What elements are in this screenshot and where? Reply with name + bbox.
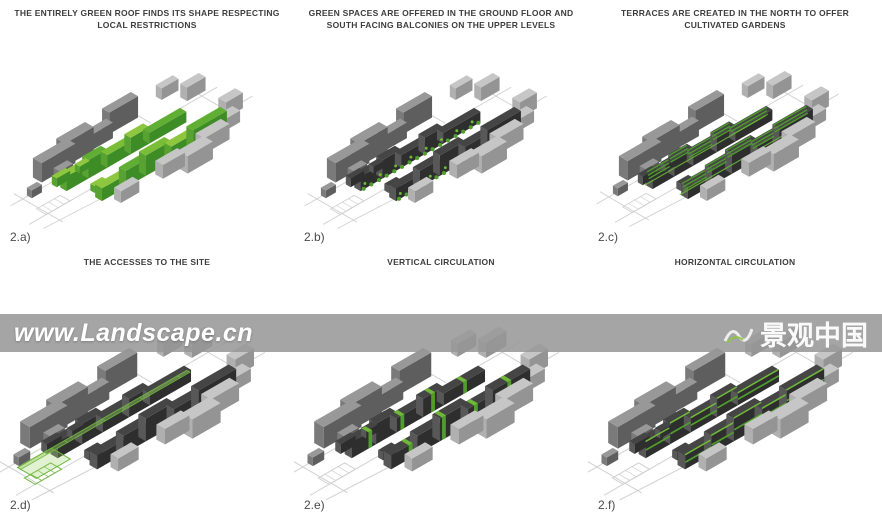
panel-caption-2a: THE ENTIRELY GREEN ROOF FINDS ITS SHAPE … bbox=[0, 0, 294, 44]
panel-2b: 2.b) bbox=[294, 44, 588, 250]
watermark-band: www.Landscape.cn 景观中国 bbox=[0, 314, 882, 352]
panel-label-2b: 2.b) bbox=[304, 230, 325, 244]
panel-2c: 2.c) bbox=[588, 44, 882, 250]
panel-label-2f: 2.f) bbox=[598, 498, 615, 512]
panel-caption-2c: TERRACES ARE CREATED IN THE NORTH TO OFF… bbox=[588, 0, 882, 44]
diagram-sheet: THE ENTIRELY GREEN ROOF FINDS ITS SHAPE … bbox=[0, 0, 882, 526]
landscape-swoosh-icon bbox=[723, 321, 753, 345]
site-axonometric-diagram-2d bbox=[0, 272, 294, 526]
panel-caption-2e: VERTICAL CIRCULATION bbox=[294, 250, 588, 272]
site-axonometric-diagram-2c bbox=[588, 44, 882, 250]
panel-2f: 2.f) bbox=[588, 272, 882, 526]
panel-caption-2d: THE ACCESSES TO THE SITE bbox=[0, 250, 294, 272]
panels-row-top: 2.a) 2.b) 2.c) bbox=[0, 44, 882, 250]
mid-captions-row: THE ACCESSES TO THE SITE VERTICAL CIRCUL… bbox=[0, 250, 882, 272]
site-axonometric-diagram-2a bbox=[0, 44, 294, 250]
site-axonometric-diagram-2f bbox=[588, 272, 882, 526]
panel-label-2e: 2.e) bbox=[304, 498, 325, 512]
site-axonometric-diagram-2b bbox=[294, 44, 588, 250]
panel-caption-2b: GREEN SPACES ARE OFFERED IN THE GROUND F… bbox=[294, 0, 588, 44]
panel-2a: 2.a) bbox=[0, 44, 294, 250]
panels-row-bottom: 2.d) 2.e) 2.f) bbox=[0, 272, 882, 526]
panel-label-2a: 2.a) bbox=[10, 230, 31, 244]
panel-2e: 2.e) bbox=[294, 272, 588, 526]
site-axonometric-diagram-2e bbox=[294, 272, 588, 526]
watermark-left-text: www.Landscape.cn bbox=[14, 319, 253, 348]
watermark-right: 景观中国 bbox=[723, 314, 868, 353]
panel-caption-2f: HORIZONTAL CIRCULATION bbox=[588, 250, 882, 272]
top-captions-row: THE ENTIRELY GREEN ROOF FINDS ITS SHAPE … bbox=[0, 0, 882, 44]
watermark-right-text: 景观中国 bbox=[760, 314, 868, 353]
panel-label-2c: 2.c) bbox=[598, 230, 618, 244]
panel-label-2d: 2.d) bbox=[10, 498, 31, 512]
panel-2d: 2.d) bbox=[0, 272, 294, 526]
